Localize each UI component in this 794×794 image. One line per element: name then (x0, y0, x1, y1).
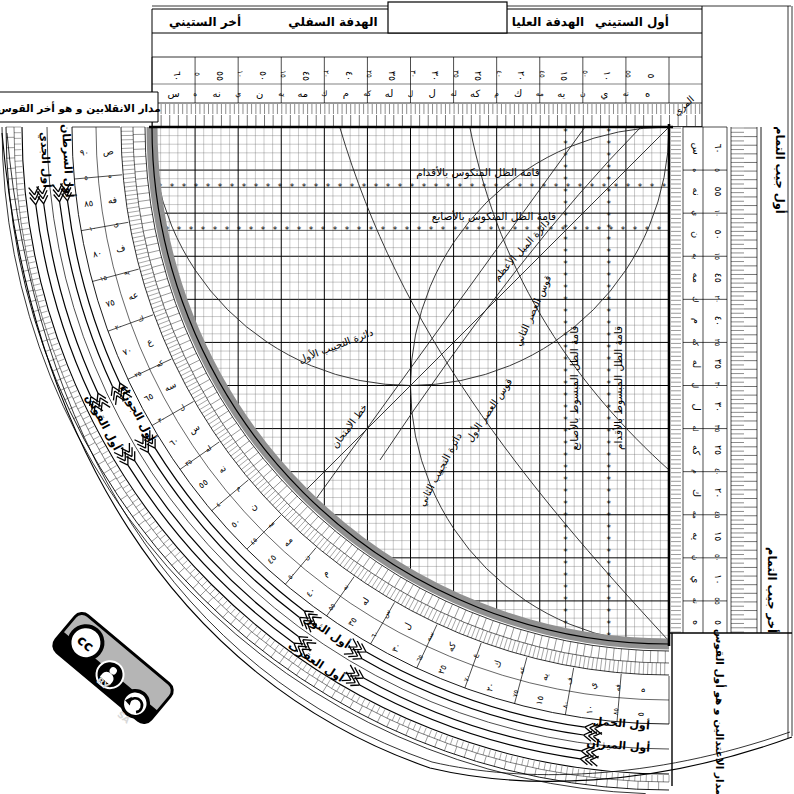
star-mark: * (206, 182, 211, 192)
tick (500, 637, 504, 648)
top-scale-value: ٥٥ (215, 71, 226, 81)
tick (474, 753, 476, 761)
tick (34, 284, 41, 286)
top-scale-abjad: ك (514, 88, 522, 99)
tick (22, 228, 29, 229)
arc-scale-minor-abjad: ك (137, 314, 145, 324)
right-scale-minor-abjad: ك (691, 296, 700, 302)
star-mark: * (626, 182, 631, 192)
star-mark: * (606, 259, 611, 269)
tick (414, 588, 420, 599)
tick (261, 634, 265, 640)
tick (266, 638, 270, 644)
top-scale-minor-abjad: ل (408, 89, 413, 98)
top-scale-minor-value: ٤٥ (538, 70, 546, 78)
tick (406, 728, 409, 735)
top-scale-minor-abjad: ه (193, 89, 197, 98)
arc-scale-minor-value: ٧٥ (511, 689, 521, 698)
tick (140, 268, 152, 271)
tick (75, 401, 81, 404)
tick (152, 305, 163, 309)
arc-scale-abjad: ه (636, 688, 646, 693)
tick (20, 212, 27, 213)
top-scale-minor-abjad: له (450, 89, 456, 98)
tick (197, 400, 207, 406)
tick (350, 701, 354, 708)
tick (600, 659, 602, 671)
tick (516, 642, 519, 654)
label-end-of-sixty: أخر الستيني (169, 14, 241, 29)
arc-scale-abjad: يه (539, 672, 550, 682)
tick (219, 411, 229, 418)
tick (337, 685, 341, 691)
tick (388, 573, 394, 583)
tick (524, 644, 527, 656)
label-cancer: أول السرطان (59, 124, 77, 198)
arc-scale-value: ٨٠ (92, 248, 103, 260)
tick (218, 597, 223, 602)
tick (171, 548, 176, 553)
tick (208, 597, 214, 603)
tick (403, 719, 406, 725)
tick (43, 317, 50, 319)
tick (357, 553, 364, 563)
star-mark: * (357, 225, 362, 235)
tick (416, 603, 422, 614)
star-mark: * (606, 439, 611, 449)
tick (124, 182, 136, 183)
star-mark: * (350, 182, 355, 192)
star-mark: * (345, 225, 350, 235)
tick (447, 617, 452, 628)
tick (185, 378, 196, 384)
star-mark: * (633, 225, 638, 235)
equinox-corner-box: مدار الاعتدالين و هو أول القوس (669, 629, 792, 794)
tick (38, 300, 45, 302)
right-scale-value: ٢٥ (713, 445, 724, 455)
tick (595, 771, 596, 778)
tick (505, 754, 507, 761)
star-mark: * (606, 367, 611, 377)
arc-scale-value: ١٥ (534, 695, 546, 706)
tick (202, 581, 207, 586)
right-scale-abjad: له (691, 360, 702, 368)
tick (576, 643, 578, 655)
tick (463, 624, 468, 635)
tick (127, 203, 139, 205)
tick (240, 441, 250, 448)
star-mark: * (465, 225, 470, 235)
star-mark: * (563, 559, 568, 569)
right-scale-minor-abjad: يه (691, 253, 700, 259)
tick (591, 645, 593, 657)
star-mark: * (434, 182, 439, 192)
tick (316, 521, 324, 530)
tick (361, 570, 368, 580)
arc-scale-minor-value: ١٠ (88, 224, 96, 233)
tick (496, 635, 500, 646)
tick (25, 245, 32, 246)
tick (10, 199, 18, 200)
star-mark: * (249, 225, 254, 235)
top-scale-abjad: ي (600, 88, 608, 100)
tick (550, 650, 553, 662)
tick (468, 613, 473, 624)
star-mark: * (563, 595, 568, 605)
tick (454, 607, 459, 618)
tick (270, 641, 274, 647)
tick (472, 745, 474, 752)
tick (231, 609, 236, 614)
tick (178, 556, 183, 561)
tick (483, 631, 487, 642)
star-mark: * (489, 225, 494, 235)
tick (622, 661, 623, 673)
tick (271, 651, 276, 657)
tick (627, 781, 628, 789)
star-mark: * (606, 379, 611, 389)
tick (142, 273, 154, 276)
top-scale-abjad: يه (557, 88, 565, 99)
tick (203, 386, 213, 392)
tick (16, 178, 23, 179)
top-scale-value: ١٠ (602, 71, 613, 81)
star-mark: * (563, 187, 568, 197)
tick (354, 566, 361, 576)
tick (134, 244, 146, 247)
star-mark: * (606, 127, 611, 137)
tick (122, 152, 134, 153)
tick (525, 632, 528, 644)
tick (122, 161, 134, 162)
tick (440, 734, 443, 741)
tick (35, 289, 42, 291)
tick (461, 742, 463, 749)
top-scale-minor-value: ٣٥ (452, 70, 460, 78)
tick (467, 743, 469, 750)
tick (7, 168, 15, 169)
label-equinox-orbit: مدار الاعتدالين و هو أول القوس (713, 629, 727, 794)
top-sixty-scale: ٥ه١٠ي١٥يه٢٠ك٢٥كه٣٠ل٣٥له٤٠م٤٥مه٥٠ن٥٥نه٦٠س… (152, 57, 702, 127)
tick (9, 189, 17, 190)
star-mark: * (563, 571, 568, 581)
tick (592, 658, 594, 670)
tick (207, 392, 217, 398)
tick (408, 584, 414, 595)
tick (327, 531, 335, 540)
tick (138, 260, 150, 263)
tick (156, 317, 167, 321)
tick (362, 699, 365, 705)
tick (244, 620, 249, 625)
tick (401, 581, 407, 591)
right-scale-value: ٣٥ (713, 359, 724, 369)
tick (151, 301, 162, 305)
star-mark: * (606, 295, 611, 305)
tick (32, 278, 39, 280)
tick (129, 219, 141, 221)
tick (152, 537, 158, 542)
star-mark: * (563, 463, 568, 473)
star-mark: * (606, 511, 611, 521)
tick (478, 747, 480, 754)
star-mark: * (470, 182, 475, 192)
tick (420, 605, 426, 616)
arc-scale-abjad: ي (587, 682, 598, 690)
star-mark: * (237, 225, 242, 235)
star-mark: * (405, 225, 410, 235)
star-mark: * (314, 182, 319, 192)
tick (432, 610, 437, 621)
top-scale-minor-abjad: م (494, 89, 499, 98)
tick (44, 322, 51, 324)
tick (386, 586, 392, 596)
arc-scale-abjad: له (359, 596, 372, 608)
tick (554, 651, 557, 663)
star-mark: * (606, 235, 611, 245)
label-lower-sight: الهدفة السفلي (288, 15, 377, 29)
top-scale-value: ١٥ (559, 71, 570, 81)
tick (606, 647, 608, 659)
star-mark: * (563, 547, 568, 557)
tick (494, 751, 496, 758)
star-mark: * (606, 283, 611, 293)
tick (562, 653, 564, 665)
label-muri: المري (671, 93, 696, 117)
tick (17, 189, 24, 190)
tick (135, 171, 147, 172)
tick (613, 648, 614, 660)
star-mark: * (606, 523, 611, 533)
tick (397, 717, 400, 723)
tick (192, 367, 203, 373)
star-mark: * (606, 211, 611, 221)
tick (210, 589, 215, 594)
grid-curve-labels: قامة الظل المنكوس بالأقدام قامة الظل الم… (297, 166, 625, 508)
tick (167, 544, 172, 549)
tick (186, 353, 197, 358)
right-scale-abjad: ه (691, 620, 702, 625)
tick (475, 616, 479, 627)
tick (227, 423, 237, 430)
tick (289, 655, 293, 661)
tick (609, 660, 610, 672)
star-mark: * (333, 225, 338, 235)
tick (138, 200, 150, 202)
tick (123, 173, 135, 174)
tick (78, 406, 84, 409)
tick (479, 630, 483, 641)
tick (19, 206, 26, 207)
right-scale-abjad: مه (691, 272, 702, 283)
tick (73, 396, 79, 399)
star-mark: * (606, 175, 611, 185)
star-mark: * (477, 225, 482, 235)
tick (80, 411, 86, 414)
tick (504, 638, 508, 649)
right-scale-minor-abjad: نه (691, 598, 700, 604)
tick (183, 374, 194, 380)
star-mark: * (218, 182, 223, 192)
tick (195, 396, 205, 402)
arc-scale-minor-abjad: كه (155, 359, 165, 370)
tick (383, 584, 389, 594)
tick (206, 414, 216, 420)
arc-scale-abjad: ص (103, 146, 114, 156)
star-mark: * (429, 225, 434, 235)
arc-scale-minor-value: ٤٥ (249, 536, 260, 547)
tick (136, 178, 148, 179)
star-mark: * (638, 182, 643, 192)
arc-scale-abjad: ن (248, 501, 260, 513)
tick (173, 355, 184, 360)
star-mark: * (422, 182, 427, 192)
top-scale-minor-abjad: نه (623, 89, 629, 98)
tick (102, 451, 108, 455)
arc-scale-minor-value: ٦٥ (415, 653, 425, 663)
tick (435, 740, 438, 748)
arc-scale-value: ٤٥ (265, 553, 279, 566)
tick (445, 736, 447, 743)
right-scale-minor-abjad: ه (691, 168, 700, 172)
tick (310, 516, 318, 525)
label-test-line: خط الامتحان (329, 402, 369, 451)
tick (231, 449, 241, 456)
tick (123, 177, 135, 178)
tick (88, 426, 94, 429)
arc-scale-value: ٣٥ (345, 615, 358, 628)
tick (163, 299, 174, 303)
tick (576, 776, 577, 784)
tick (200, 590, 206, 596)
tick (233, 452, 243, 459)
tick (98, 460, 105, 464)
star-mark: * (266, 182, 271, 192)
tick (85, 421, 91, 424)
sine-quadrant-diagram: ****************************************… (0, 0, 794, 794)
tick (246, 632, 251, 638)
tick (434, 732, 437, 739)
top-scale-abjad: نه (213, 88, 221, 99)
tick (111, 466, 117, 470)
tick (153, 309, 164, 313)
top-scale-value: ٥ (646, 73, 657, 78)
solstice-corner-box: مدار الانقلابين و هو أخر القوس (0, 92, 161, 122)
tick (158, 320, 169, 324)
tick (200, 404, 210, 410)
tick (343, 558, 350, 568)
star-mark: * (177, 225, 182, 235)
tick (134, 164, 146, 165)
top-scale-value: ٢٥ (473, 71, 484, 81)
tick (382, 709, 385, 715)
tick (529, 645, 532, 657)
tick (620, 649, 621, 661)
tick (390, 588, 396, 598)
tick (561, 766, 562, 773)
right-scale-value: ٥ (713, 620, 724, 625)
arc-scale-minor-value: ٧٠ (462, 673, 472, 682)
tick (137, 193, 149, 195)
tick (179, 367, 190, 372)
tick (635, 662, 636, 674)
tick (136, 185, 148, 186)
tick (49, 359, 57, 362)
tick (387, 712, 390, 718)
tick (617, 661, 618, 673)
star-mark: * (650, 182, 655, 192)
tick (484, 756, 486, 764)
star-mark: * (261, 225, 266, 235)
tick (27, 256, 34, 257)
tick (359, 706, 363, 713)
star-mark: * (606, 139, 611, 149)
tick (136, 252, 148, 255)
tick (149, 522, 155, 526)
tick (618, 773, 619, 780)
star-mark: * (278, 182, 283, 192)
top-scale-value: ٦٠ (172, 71, 183, 81)
right-scale-minor-abjad: م (691, 469, 700, 474)
top-scale-minor-abjad: مه (536, 89, 544, 98)
tick (368, 575, 375, 585)
tick (545, 649, 548, 661)
tick (487, 633, 491, 644)
tick (584, 770, 585, 777)
tick (147, 289, 158, 293)
sighting-tab (388, 2, 507, 33)
arc-scale-value: ٧٥ (104, 297, 116, 309)
tick (583, 644, 585, 656)
arc-scale-abjad: سه (162, 379, 178, 394)
label-sagittarius: أول القوس (83, 392, 124, 453)
tick (333, 535, 341, 544)
right-scale-value: ٤٥ (713, 273, 724, 283)
tick (145, 285, 157, 289)
arc-scale-abjad: كه (445, 640, 458, 653)
star-mark: * (563, 259, 568, 269)
star-mark: * (563, 535, 568, 545)
arc-scale-minor-value: ٣٥ (183, 457, 194, 468)
star-mark: * (530, 182, 535, 192)
star-mark: * (554, 182, 559, 192)
tick (347, 561, 354, 571)
tick (283, 491, 292, 499)
label-first-sine-circle: دائرة التجييب الأول (297, 326, 375, 366)
tick (357, 568, 364, 578)
tick (387, 720, 390, 727)
right-scale-abjad: س (691, 142, 702, 154)
tick (322, 526, 330, 535)
tick (11, 209, 19, 210)
tick (461, 610, 466, 621)
tick (440, 614, 445, 625)
tick (122, 165, 134, 166)
tick (606, 772, 607, 779)
arc-scale-abjad: فه (107, 195, 117, 206)
tick (143, 512, 149, 516)
tick (494, 759, 496, 767)
star-mark: * (374, 182, 379, 192)
tick (532, 634, 535, 646)
tick (202, 407, 212, 413)
tick (50, 338, 57, 340)
tick (239, 616, 244, 621)
star-mark: * (302, 182, 307, 192)
star-mark: * (563, 247, 568, 257)
tick (144, 281, 156, 284)
label-reversed-shadow-digits: قامة الظل المنكوس بالأصابع (432, 210, 556, 223)
